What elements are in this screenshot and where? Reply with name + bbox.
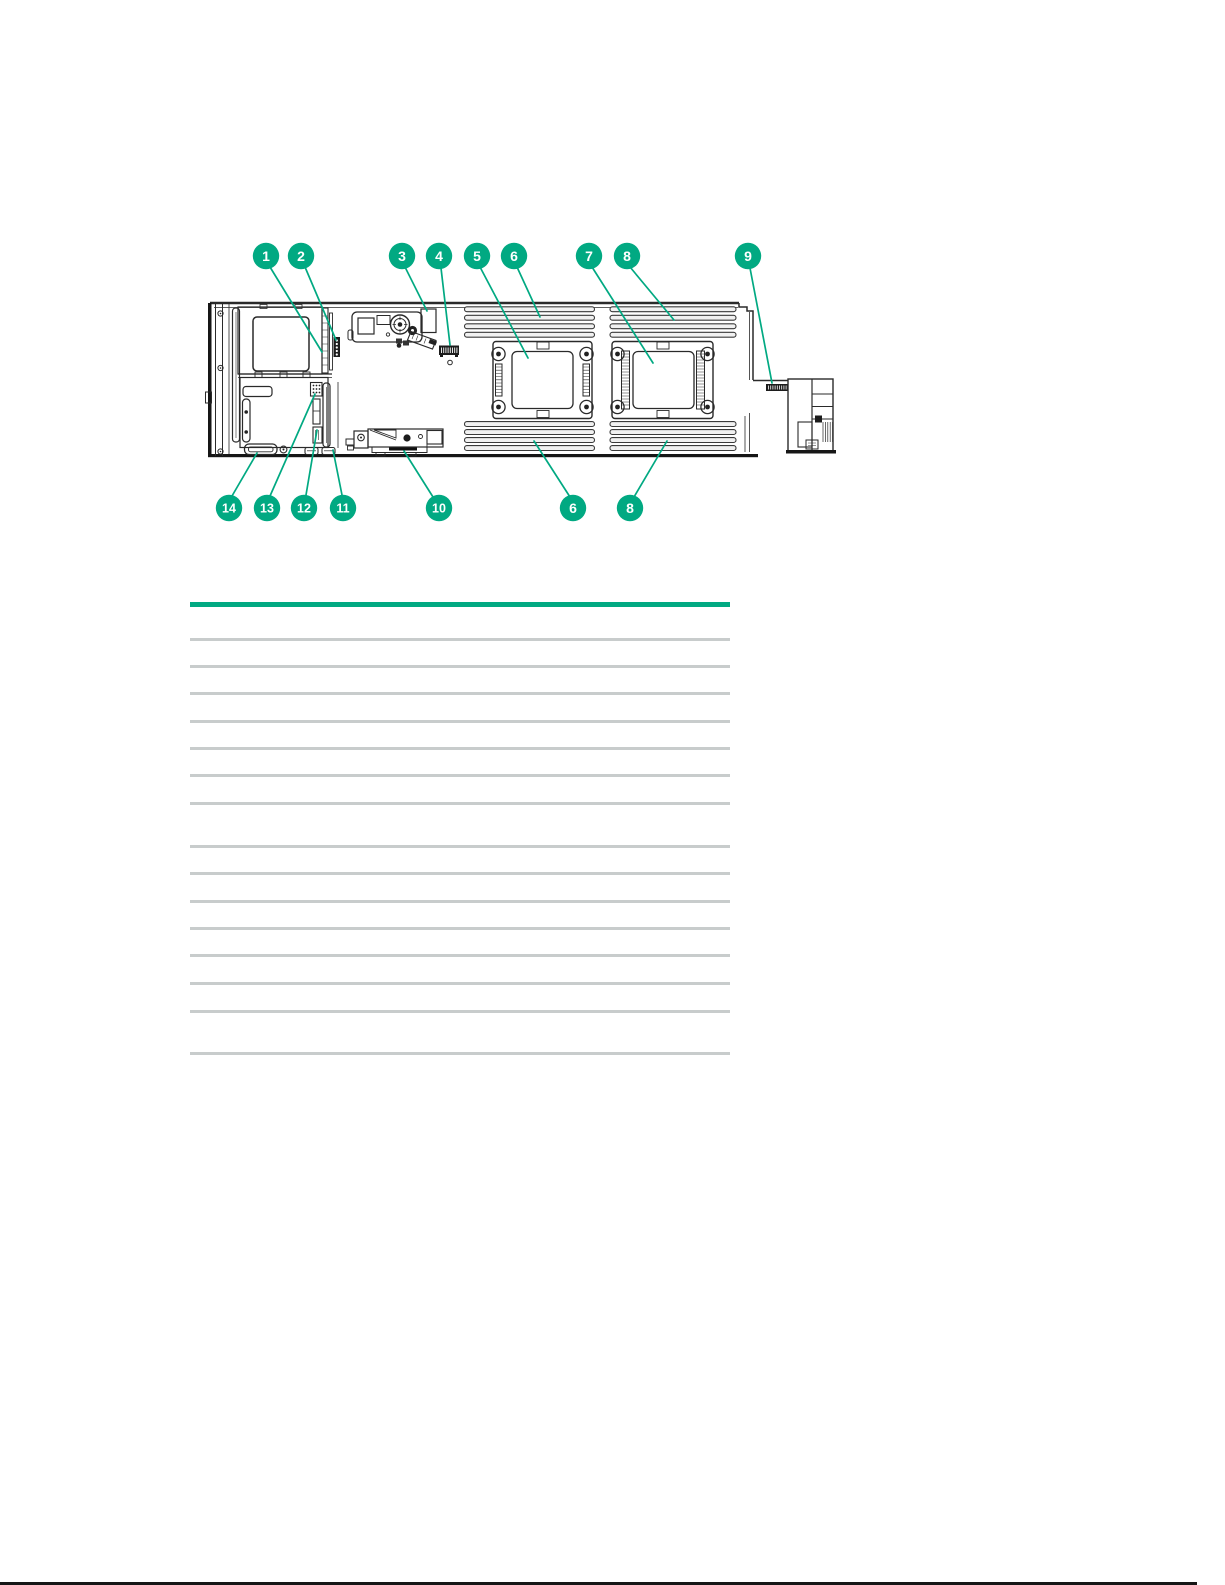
callout-10: 10 xyxy=(426,495,452,521)
dimm-bank-top-right xyxy=(610,307,736,337)
battery-assembly xyxy=(348,309,437,349)
maintenance-switch xyxy=(439,346,459,365)
table-row-divider xyxy=(190,720,730,723)
document-page: 1 2 3 4 5 6 7 xyxy=(0,0,1225,1585)
table-row-divider xyxy=(190,747,730,750)
components-table xyxy=(190,602,730,1057)
callout-6-bottom: 6 xyxy=(560,495,586,521)
callout-11: 11 xyxy=(330,495,356,521)
dimm-bank-bottom-left xyxy=(465,422,595,451)
rear-connector-assembly xyxy=(766,379,836,454)
callout-6-bottom-label: 6 xyxy=(569,500,577,516)
callout-7-label: 7 xyxy=(585,248,593,264)
callout-11-label: 11 xyxy=(336,501,349,515)
callout-10-label: 10 xyxy=(432,501,446,515)
table-row-divider xyxy=(190,900,730,903)
callout-5: 5 xyxy=(464,243,490,269)
callout-3: 3 xyxy=(389,243,415,269)
callout-9-label: 9 xyxy=(744,248,752,264)
table-row-divider xyxy=(190,982,730,985)
table-header-rule xyxy=(190,602,730,607)
table-row-divider xyxy=(190,1052,730,1055)
table-row-divider xyxy=(190,954,730,957)
callout-3-label: 3 xyxy=(398,248,406,264)
callout-5-label: 5 xyxy=(473,248,481,264)
callout-2: 2 xyxy=(288,243,314,269)
processor-socket-2 xyxy=(611,342,714,419)
callout-13-label: 13 xyxy=(260,501,274,515)
enclosure-connector xyxy=(766,384,788,391)
table-row-divider xyxy=(190,1010,730,1013)
callout-12-label: 12 xyxy=(297,501,311,515)
table-row-divider xyxy=(190,665,730,668)
callout-9: 9 xyxy=(735,243,761,269)
dimm-bank-bottom-right xyxy=(610,422,736,451)
table-row-divider xyxy=(190,638,730,641)
table-row-divider xyxy=(190,845,730,848)
callout-8-bottom-label: 8 xyxy=(626,500,634,516)
callout-6-top: 6 xyxy=(501,243,527,269)
pin-header-box xyxy=(311,383,323,397)
callout-14-label: 14 xyxy=(222,501,236,515)
table-row-divider xyxy=(190,872,730,875)
callout-8-top: 8 xyxy=(614,243,640,269)
table-row-divider xyxy=(190,692,730,695)
callout-7: 7 xyxy=(576,243,602,269)
lower-latch-assembly xyxy=(346,429,443,456)
processor-socket-1 xyxy=(492,342,593,419)
table-row-divider xyxy=(190,802,730,805)
callout-2-label: 2 xyxy=(297,248,305,264)
callout-4-label: 4 xyxy=(435,248,443,264)
callout-8-top-label: 8 xyxy=(623,248,631,264)
table-row-divider xyxy=(190,927,730,930)
system-board-diagram: 1 2 3 4 5 6 7 xyxy=(200,238,850,526)
bracket-connector xyxy=(421,309,436,333)
callout-1-label: 1 xyxy=(262,248,270,264)
table-row-divider xyxy=(190,774,730,777)
dimm-bank-top-left xyxy=(465,307,595,337)
callout-4: 4 xyxy=(426,243,452,269)
callout-6-top-label: 6 xyxy=(510,248,518,264)
callout-8-bottom: 8 xyxy=(617,495,643,521)
callout-13: 13 xyxy=(254,495,280,521)
callout-1: 1 xyxy=(253,243,279,269)
callout-12: 12 xyxy=(291,495,317,521)
upper-drive-bay xyxy=(238,305,332,378)
callout-14: 14 xyxy=(216,495,242,521)
